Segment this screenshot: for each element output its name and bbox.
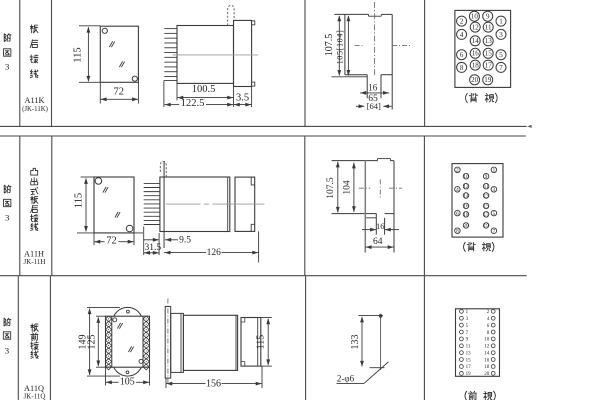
svg-text:1: 1 <box>493 168 496 174</box>
svg-text:18: 18 <box>484 365 490 370</box>
svg-text:12: 12 <box>484 345 490 350</box>
svg-text:18: 18 <box>463 212 469 218</box>
svg-text:15: 15 <box>484 204 490 210</box>
svg-text:7: 7 <box>493 229 496 235</box>
svg-text:3: 3 <box>499 31 503 39</box>
svg-text:19: 19 <box>466 372 472 377</box>
svg-text:19: 19 <box>484 223 490 229</box>
svg-text:7: 7 <box>499 64 503 72</box>
svg-text:2-φ6: 2-φ6 <box>337 374 355 384</box>
svg-text:A11K: A11K <box>25 96 45 105</box>
svg-text:10: 10 <box>471 13 479 21</box>
svg-text:16: 16 <box>472 50 480 58</box>
svg-text:11: 11 <box>466 345 471 350</box>
svg-text:17: 17 <box>484 212 490 218</box>
svg-text:125: 125 <box>87 335 98 350</box>
svg-text:17: 17 <box>485 62 493 70</box>
svg-text:(JK-11K): (JK-11K) <box>22 106 48 113</box>
svg-text:16: 16 <box>484 358 490 363</box>
svg-text:19: 19 <box>484 76 492 84</box>
svg-text:20: 20 <box>484 372 490 377</box>
svg-text:11: 11 <box>485 24 492 32</box>
svg-text:12: 12 <box>472 24 480 32</box>
svg-text:115: 115 <box>255 335 266 350</box>
svg-text:9.5: 9.5 <box>179 235 191 245</box>
svg-text:3: 3 <box>5 212 10 222</box>
svg-text:3: 3 <box>5 345 10 355</box>
svg-text:8: 8 <box>460 64 464 72</box>
svg-text:17: 17 <box>466 365 472 370</box>
svg-text:13: 13 <box>485 37 493 45</box>
svg-text:16: 16 <box>463 204 469 210</box>
svg-text:104: 104 <box>343 180 353 195</box>
svg-text:6: 6 <box>456 211 459 217</box>
svg-text:115: 115 <box>74 193 85 208</box>
svg-text:1: 1 <box>499 18 503 26</box>
svg-text:16: 16 <box>376 221 385 231</box>
svg-text:4: 4 <box>460 31 464 39</box>
svg-text:12: 12 <box>463 184 469 190</box>
svg-text:10: 10 <box>463 174 469 180</box>
svg-text:3: 3 <box>493 187 496 193</box>
svg-text:2: 2 <box>460 18 464 26</box>
svg-text:64: 64 <box>373 237 383 247</box>
svg-text:14: 14 <box>484 351 490 356</box>
svg-text:10: 10 <box>484 338 490 343</box>
svg-text:13: 13 <box>466 351 472 356</box>
svg-text:122.5: 122.5 <box>181 98 205 109</box>
svg-text:20: 20 <box>463 223 469 229</box>
svg-text:9: 9 <box>486 13 490 21</box>
svg-text:14: 14 <box>472 37 480 45</box>
svg-text:5: 5 <box>499 51 503 59</box>
svg-text:133: 133 <box>350 335 361 350</box>
svg-text:11: 11 <box>484 184 489 190</box>
svg-text:[64]: [64] <box>367 101 381 111</box>
svg-text:JK-11Q: JK-11Q <box>24 393 46 400</box>
svg-text:3: 3 <box>5 61 10 71</box>
svg-text:100.5: 100.5 <box>192 84 216 95</box>
svg-text:105: 105 <box>120 376 135 387</box>
svg-text:115: 115 <box>72 47 83 62</box>
svg-text:72: 72 <box>113 87 124 98</box>
svg-text:8: 8 <box>456 229 459 235</box>
svg-text:6: 6 <box>460 51 464 59</box>
svg-text:72: 72 <box>106 235 117 246</box>
svg-text:14: 14 <box>463 193 469 199</box>
svg-text:9: 9 <box>485 174 488 180</box>
svg-text:18: 18 <box>472 62 480 70</box>
svg-text:20: 20 <box>471 76 479 84</box>
svg-text:15: 15 <box>466 358 472 363</box>
svg-text:105[104]: 105[104] <box>336 30 345 65</box>
svg-text:156: 156 <box>206 379 221 390</box>
svg-text:126: 126 <box>207 248 222 258</box>
svg-text:5: 5 <box>493 211 496 217</box>
svg-text:JK-11H: JK-11H <box>24 258 46 266</box>
svg-text:15: 15 <box>485 50 493 58</box>
svg-text:16: 16 <box>368 82 378 92</box>
svg-text:107.5: 107.5 <box>326 177 336 199</box>
svg-text:13: 13 <box>484 193 490 199</box>
svg-text:107.5: 107.5 <box>324 34 335 57</box>
svg-text:3.5: 3.5 <box>236 93 249 104</box>
svg-text:4: 4 <box>456 187 459 193</box>
svg-text:2: 2 <box>456 168 459 174</box>
